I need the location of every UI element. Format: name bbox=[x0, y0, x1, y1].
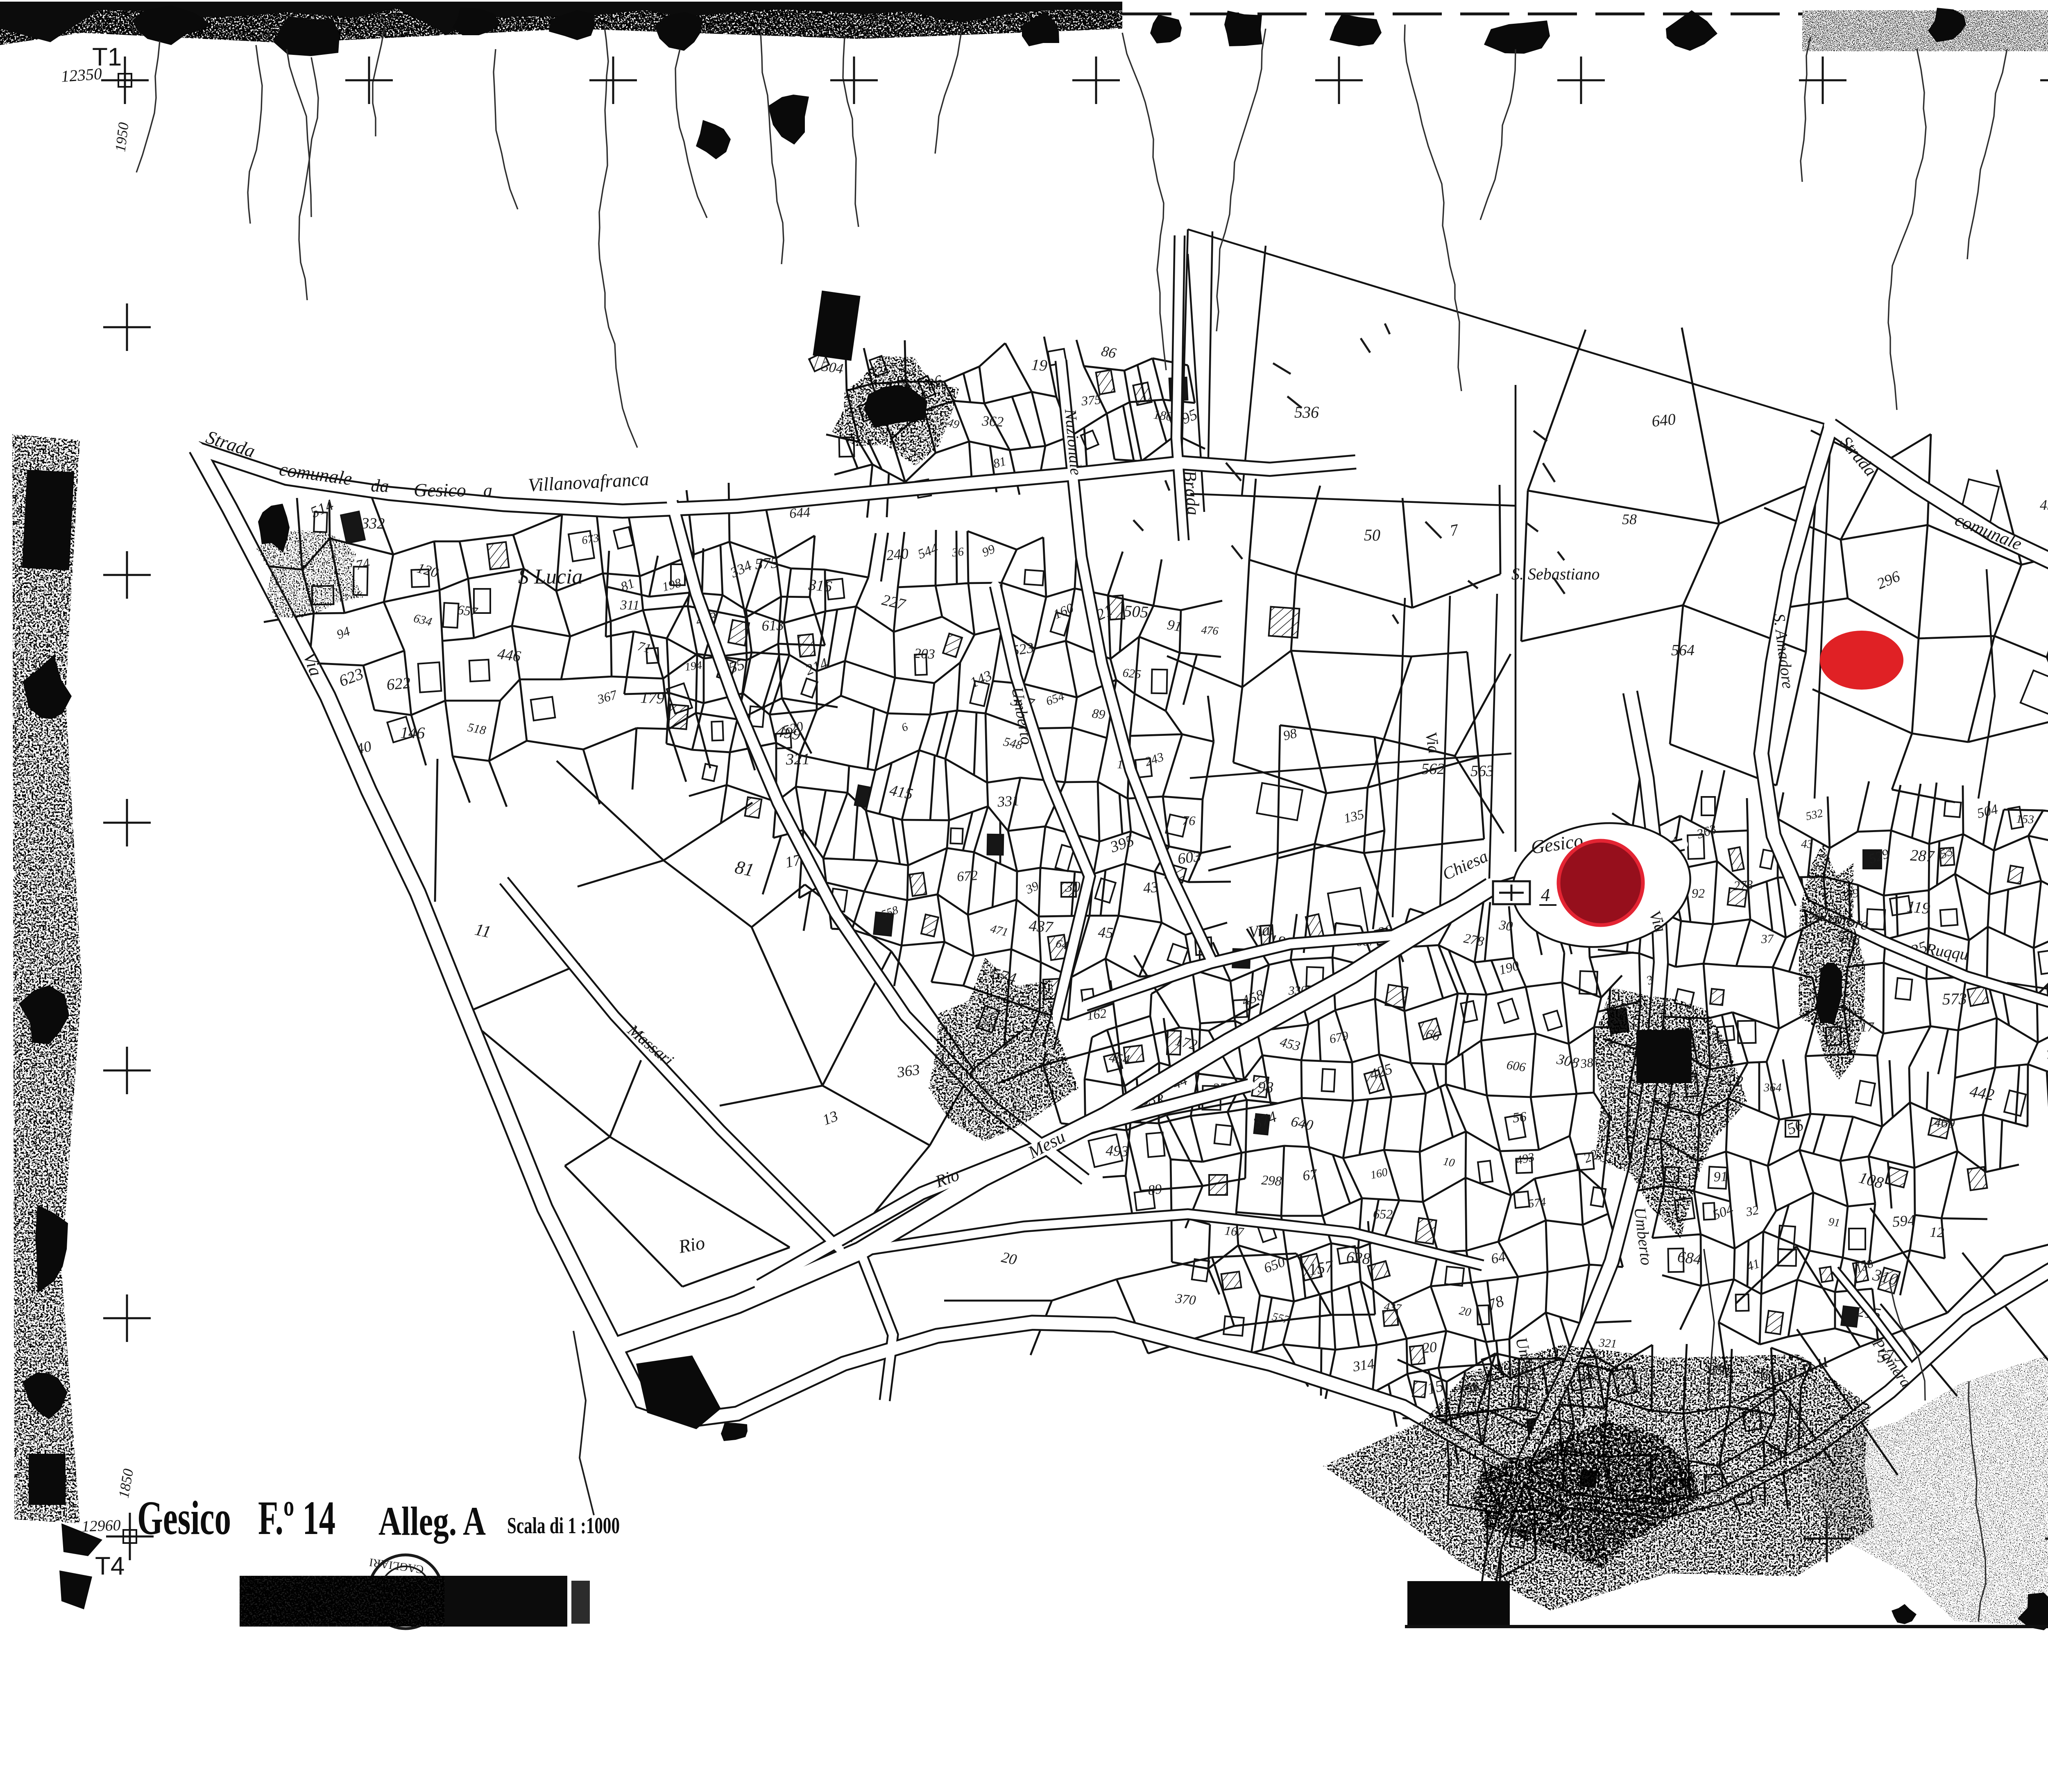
svg-text:119: 119 bbox=[1906, 897, 1931, 918]
svg-text:457: 457 bbox=[2040, 497, 2048, 513]
svg-text:Brada: Brada bbox=[1180, 470, 1203, 516]
svg-text:363: 363 bbox=[896, 1061, 921, 1081]
svg-text:43: 43 bbox=[1801, 837, 1813, 851]
svg-text:640: 640 bbox=[1651, 410, 1676, 430]
svg-text:321: 321 bbox=[785, 750, 810, 768]
svg-text:298: 298 bbox=[1261, 1173, 1282, 1189]
svg-text:314: 314 bbox=[1351, 1355, 1375, 1375]
svg-text:50: 50 bbox=[1364, 526, 1380, 544]
svg-text:563: 563 bbox=[1470, 763, 1494, 780]
svg-text:89: 89 bbox=[1091, 706, 1106, 722]
svg-text:505: 505 bbox=[1124, 602, 1149, 621]
svg-text:304: 304 bbox=[820, 358, 844, 377]
svg-text:76: 76 bbox=[1182, 813, 1196, 828]
svg-text:603: 603 bbox=[1176, 847, 1202, 868]
svg-text:S Lucia: S Lucia bbox=[518, 565, 582, 588]
svg-text:179: 179 bbox=[640, 689, 665, 707]
svg-text:311: 311 bbox=[620, 598, 640, 613]
svg-text:19: 19 bbox=[1031, 356, 1048, 375]
svg-text:20: 20 bbox=[1421, 1339, 1437, 1356]
svg-text:36: 36 bbox=[951, 545, 965, 559]
svg-text:12: 12 bbox=[1930, 1224, 1944, 1240]
svg-text:12960: 12960 bbox=[82, 1517, 121, 1535]
svg-text:657: 657 bbox=[456, 602, 479, 620]
svg-text:98: 98 bbox=[1257, 1079, 1273, 1096]
svg-text:a: a bbox=[483, 480, 492, 500]
svg-text:564: 564 bbox=[1671, 642, 1695, 659]
svg-text:622: 622 bbox=[386, 674, 411, 694]
svg-text:Gesico: Gesico bbox=[414, 480, 466, 500]
svg-text:364: 364 bbox=[1763, 1081, 1782, 1094]
svg-text:32: 32 bbox=[1744, 1203, 1760, 1219]
svg-text:146: 146 bbox=[400, 723, 425, 742]
svg-text:91: 91 bbox=[1166, 616, 1183, 634]
svg-text:153: 153 bbox=[2016, 812, 2034, 826]
svg-text:Scala di 1 :1000: Scala di 1 :1000 bbox=[507, 1513, 620, 1539]
svg-text:628: 628 bbox=[1346, 1248, 1371, 1268]
svg-text:S. Sebastiano: S. Sebastiano bbox=[1511, 565, 1600, 583]
svg-text:562: 562 bbox=[1421, 760, 1445, 778]
svg-text:362: 362 bbox=[981, 413, 1004, 430]
svg-text:240: 240 bbox=[886, 545, 909, 563]
svg-text:625: 625 bbox=[1122, 666, 1142, 681]
svg-text:180: 180 bbox=[1153, 407, 1174, 423]
svg-text:321: 321 bbox=[1598, 1336, 1618, 1351]
svg-text:30: 30 bbox=[1498, 918, 1514, 934]
svg-text:332: 332 bbox=[361, 515, 385, 532]
svg-text:91: 91 bbox=[1828, 1215, 1841, 1229]
svg-text:157: 157 bbox=[1307, 1257, 1335, 1279]
svg-text:273: 273 bbox=[1733, 877, 1753, 893]
svg-text:573: 573 bbox=[1942, 989, 1967, 1008]
svg-text:493: 493 bbox=[1106, 1142, 1129, 1160]
svg-text:74: 74 bbox=[354, 556, 371, 573]
svg-text:476: 476 bbox=[1201, 624, 1219, 638]
svg-text:T4: T4 bbox=[95, 1552, 125, 1580]
svg-text:86: 86 bbox=[1100, 343, 1117, 362]
svg-text:56: 56 bbox=[1512, 1109, 1527, 1126]
svg-text:437: 437 bbox=[1028, 917, 1054, 936]
svg-text:Via: Via bbox=[1247, 920, 1271, 941]
svg-text:Via: Via bbox=[1422, 731, 1443, 755]
svg-text:203: 203 bbox=[914, 646, 936, 662]
svg-text:652: 652 bbox=[1373, 1206, 1393, 1222]
svg-text:4: 4 bbox=[1541, 885, 1550, 905]
svg-text:12350: 12350 bbox=[60, 64, 102, 86]
svg-text:45: 45 bbox=[1097, 924, 1114, 941]
svg-text:43: 43 bbox=[1142, 879, 1159, 897]
svg-text:38: 38 bbox=[1579, 1055, 1595, 1071]
svg-text:375: 375 bbox=[1080, 392, 1101, 408]
svg-text:316: 316 bbox=[807, 576, 832, 595]
svg-text:F.º 14: F.º 14 bbox=[258, 1491, 335, 1545]
svg-text:287: 287 bbox=[1910, 846, 1935, 865]
svg-text:Alleg. A: Alleg. A bbox=[378, 1498, 486, 1544]
svg-text:672: 672 bbox=[956, 868, 978, 885]
svg-text:606: 606 bbox=[1506, 1057, 1527, 1074]
svg-text:37: 37 bbox=[1760, 932, 1774, 946]
svg-text:da: da bbox=[371, 475, 390, 496]
svg-text:469: 469 bbox=[1933, 1115, 1955, 1131]
svg-text:370: 370 bbox=[1174, 1291, 1196, 1308]
svg-text:91: 91 bbox=[1713, 1169, 1728, 1185]
svg-text:594: 594 bbox=[1892, 1212, 1916, 1231]
svg-text:437: 437 bbox=[1383, 1300, 1402, 1315]
svg-text:10: 10 bbox=[1442, 1155, 1456, 1170]
svg-text:684: 684 bbox=[1676, 1248, 1702, 1268]
svg-text:58: 58 bbox=[1622, 511, 1637, 527]
svg-text:194: 194 bbox=[684, 659, 702, 674]
svg-text:67: 67 bbox=[1302, 1166, 1319, 1184]
svg-text:331: 331 bbox=[997, 792, 1020, 810]
svg-text:30: 30 bbox=[1065, 878, 1081, 896]
svg-text:92: 92 bbox=[1692, 886, 1705, 901]
svg-text:574: 574 bbox=[1527, 1195, 1547, 1211]
svg-text:Gesico: Gesico bbox=[137, 1491, 231, 1545]
svg-text:446: 446 bbox=[496, 645, 522, 665]
